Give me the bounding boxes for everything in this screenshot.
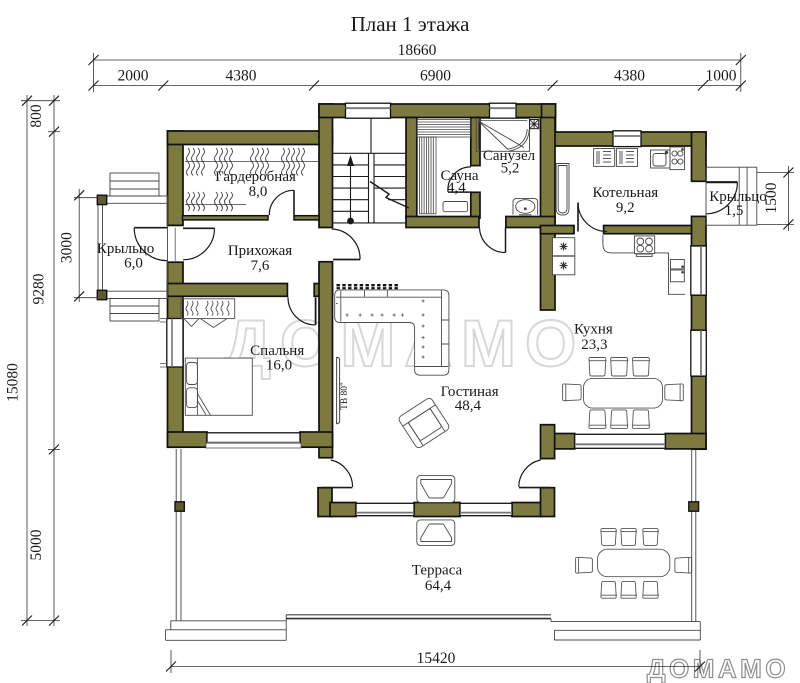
svg-text:6900: 6900	[420, 68, 451, 85]
svg-text:ТВ 80": ТВ 80"	[340, 382, 350, 410]
svg-text:15420: 15420	[417, 650, 456, 667]
svg-text:6,0: 6,0	[124, 256, 143, 272]
svg-text:1000: 1000	[706, 68, 737, 85]
svg-text:4380: 4380	[226, 68, 257, 85]
svg-text:1,5: 1,5	[725, 203, 744, 219]
svg-text:48,4: 48,4	[455, 398, 482, 414]
svg-text:800: 800	[28, 104, 45, 128]
svg-text:5,2: 5,2	[501, 161, 520, 177]
svg-text:4,4: 4,4	[447, 180, 466, 196]
svg-text:5000: 5000	[28, 529, 45, 560]
svg-text:Прихожая: Прихожая	[228, 243, 292, 259]
svg-text:ДОМАМО: ДОМАМО	[647, 654, 789, 683]
svg-text:Кухня: Кухня	[574, 322, 613, 338]
svg-text:23,3: 23,3	[581, 337, 607, 353]
svg-text:9,2: 9,2	[616, 200, 635, 216]
svg-text:16,0: 16,0	[266, 358, 292, 374]
svg-text:3000: 3000	[59, 232, 76, 263]
svg-text:8,0: 8,0	[249, 184, 268, 200]
svg-text:Терраса: Терраса	[412, 563, 463, 579]
svg-text:64,4: 64,4	[425, 578, 452, 594]
svg-text:9280: 9280	[31, 273, 48, 304]
svg-text:Гардеробная: Гардеробная	[215, 169, 296, 185]
svg-text:15080: 15080	[5, 363, 22, 402]
svg-text:План 1 этажа: План 1 этажа	[351, 12, 470, 36]
svg-text:Котельная: Котельная	[592, 185, 658, 201]
svg-text:18660: 18660	[398, 42, 437, 59]
svg-text:2000: 2000	[118, 68, 149, 85]
svg-text:7,6: 7,6	[251, 258, 270, 274]
svg-text:4380: 4380	[614, 68, 645, 85]
